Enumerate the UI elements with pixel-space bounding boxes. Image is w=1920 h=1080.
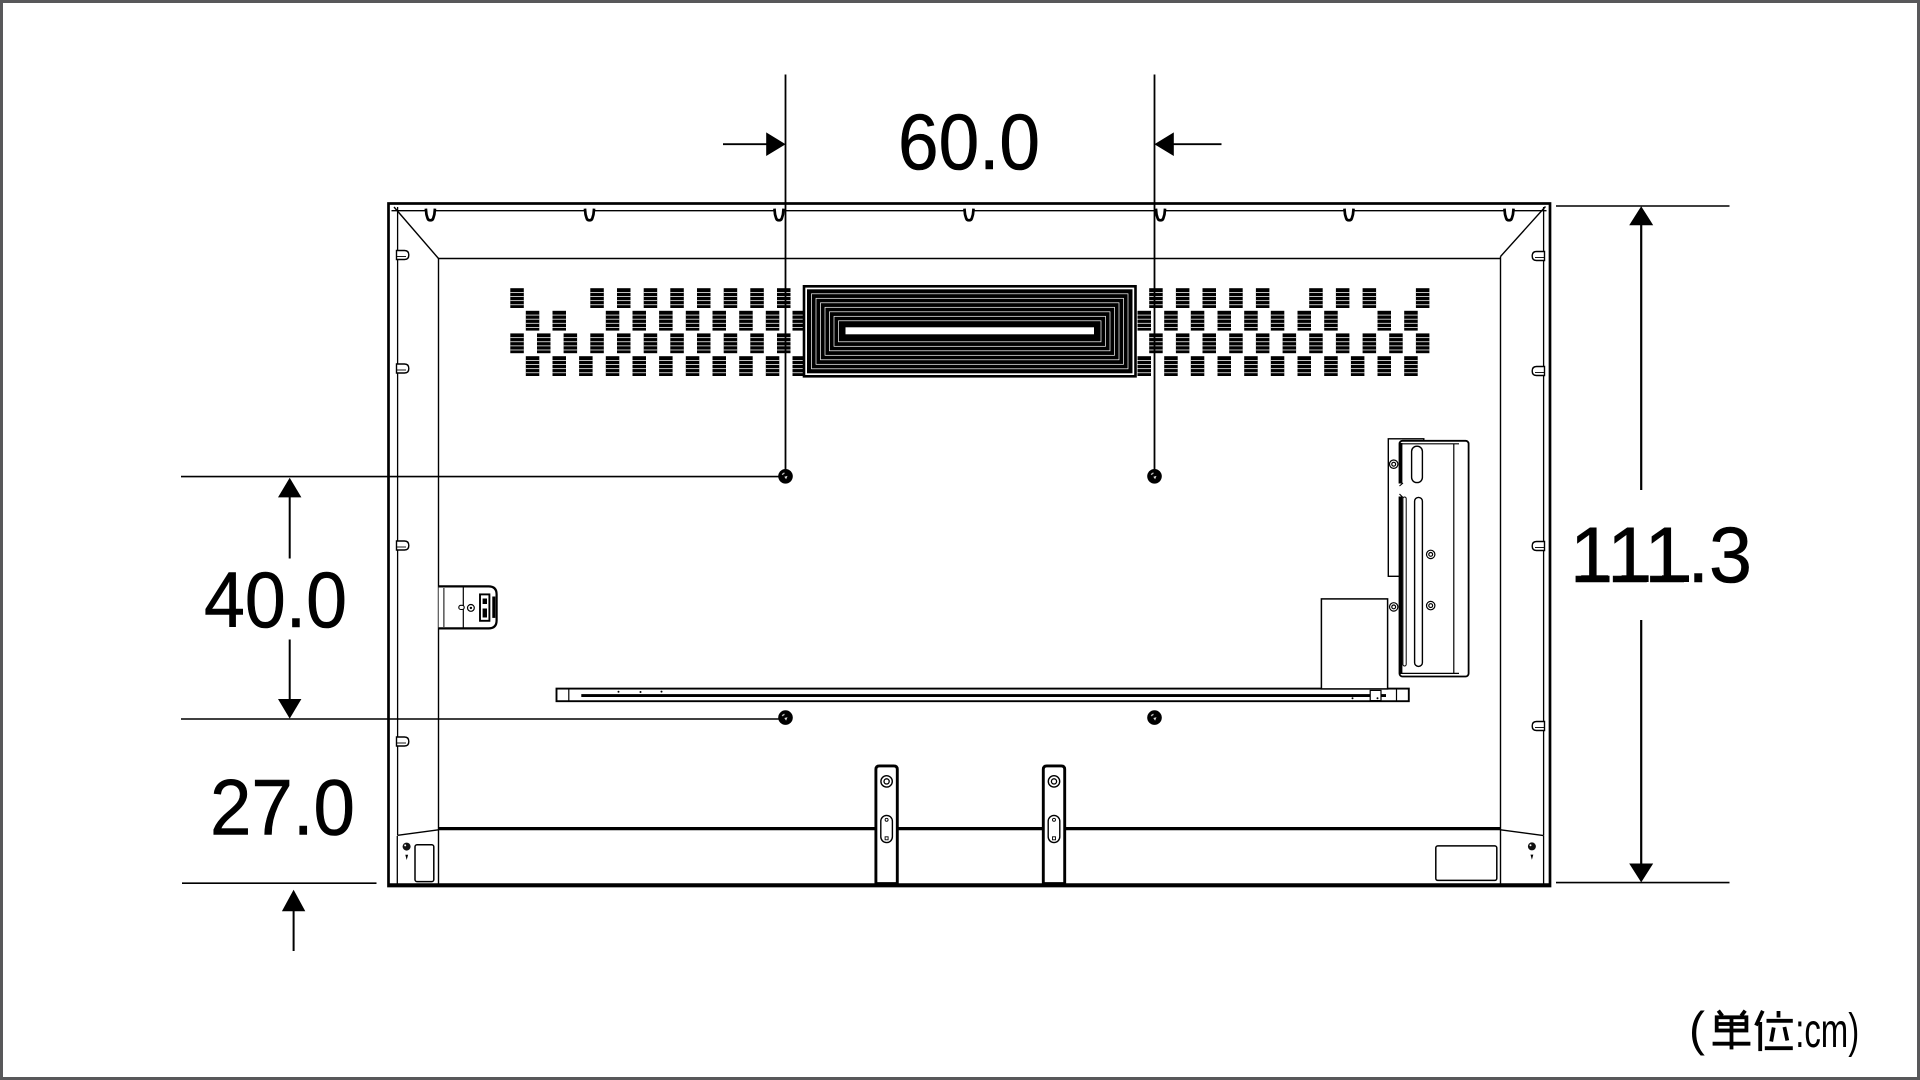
svg-text::cm): :cm) (1795, 1005, 1859, 1058)
svg-text:27.0: 27.0 (210, 763, 355, 852)
svg-text:60.0: 60.0 (898, 97, 1040, 186)
svg-text:40.0: 40.0 (204, 555, 347, 644)
svg-text:111.3: 111.3 (1570, 510, 1752, 599)
svg-text:(: ( (1689, 1004, 1705, 1057)
